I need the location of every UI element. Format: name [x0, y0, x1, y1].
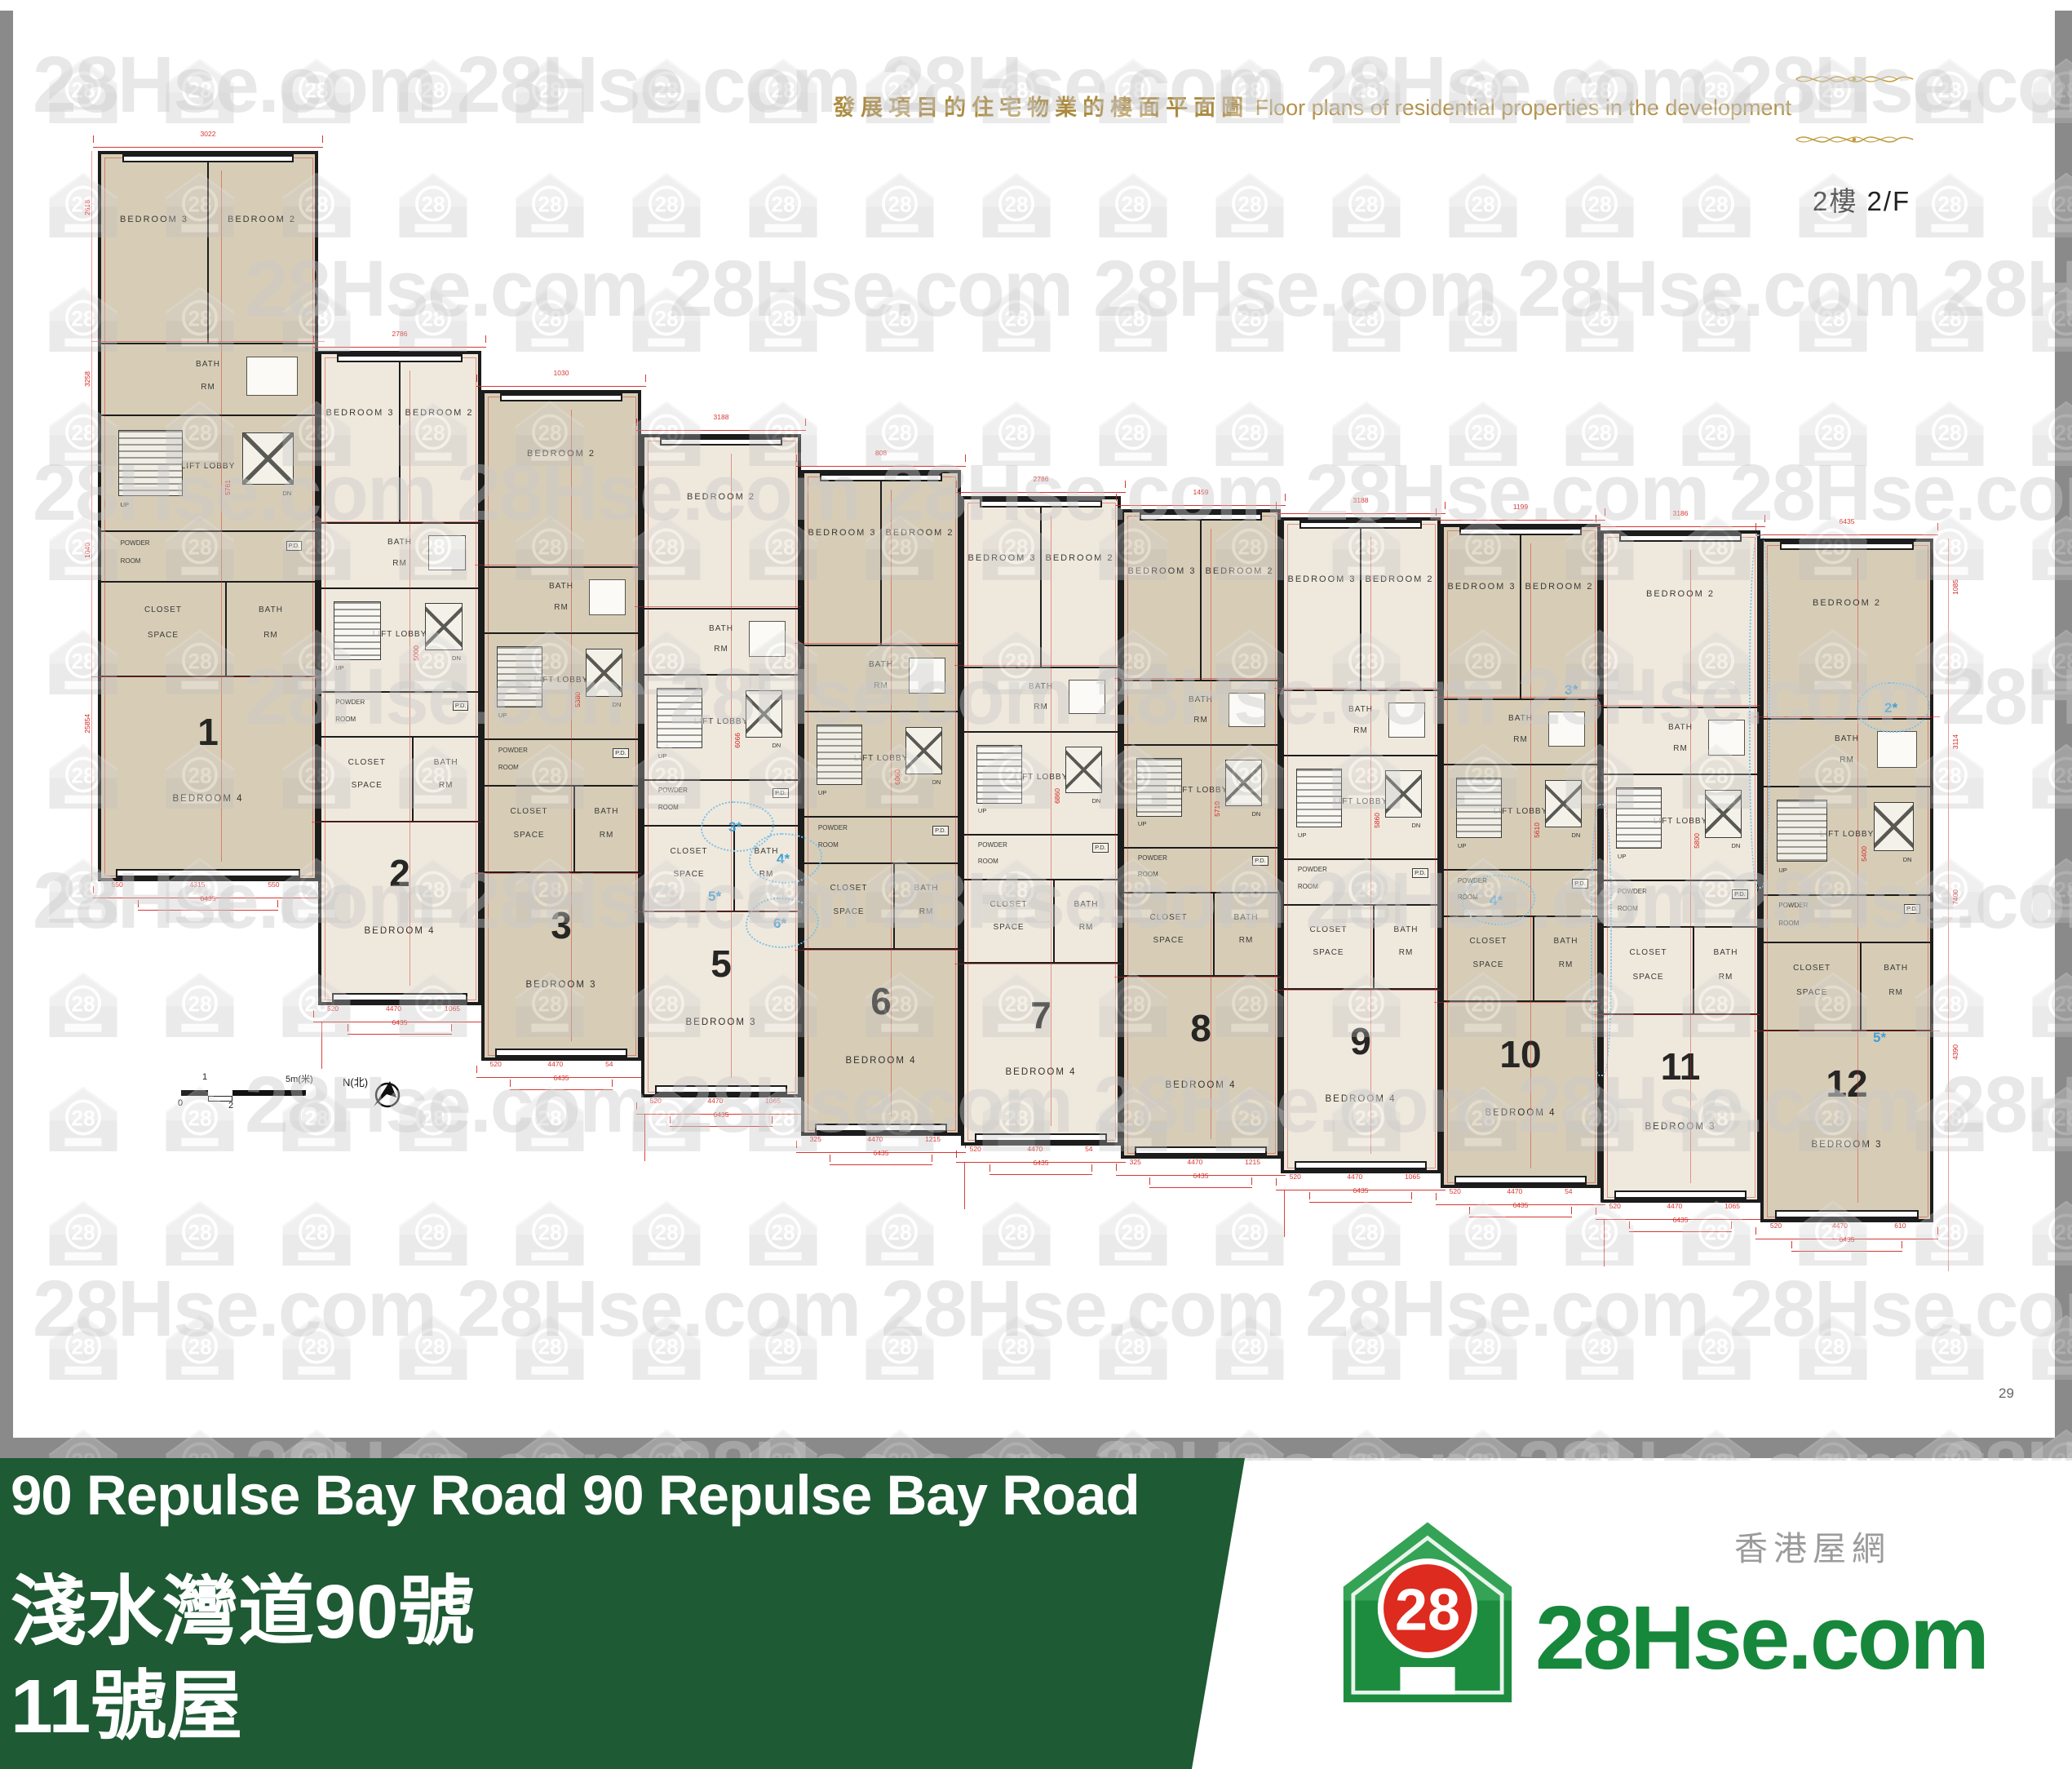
dimension-value: 6435: [1149, 1172, 1251, 1180]
page-title-chinese: 發展項目的住宅物業的樓面平面圖: [833, 95, 1249, 120]
dimension-stub: [1284, 1190, 1285, 1237]
dimension-stub: [1604, 1219, 1605, 1266]
dimension-rail-top: 1030: [476, 378, 646, 387]
dimension-value: 550: [112, 880, 123, 889]
window-band-bottom: [116, 869, 299, 880]
floor-label: 2樓 2/F: [1813, 180, 1910, 219]
dimension-value: 325: [1130, 1158, 1141, 1166]
dimension-rail-bottom2: 6435: [1309, 1195, 1411, 1203]
dimension-rail-top: 3022: [93, 139, 323, 148]
dimension-value: 520: [1770, 1221, 1782, 1230]
north-arrow-icon: [369, 1077, 405, 1111]
scale-label-2: 2: [228, 1101, 233, 1111]
page-title: 發展項目的住宅物業的樓面平面圖 Floor plans of residenti…: [457, 90, 1791, 122]
dimension-value: 6435: [1791, 1235, 1902, 1244]
dimension-rail-top: 3186: [1596, 518, 1765, 527]
dimension-line: [475, 565, 648, 565]
dimension-line-vertical: [1051, 516, 1051, 1126]
window-band-bottom: [495, 1049, 627, 1059]
dimension-inset-outline: [1447, 530, 1596, 1183]
dimension-line: [1274, 990, 1447, 991]
window-band-top: [1619, 532, 1742, 542]
dimension-line: [1754, 1031, 1940, 1031]
ornament-flourish-icon: [1793, 129, 1915, 150]
revision-cloud-strip: [1749, 534, 1770, 889]
dimension-value-vertical: 1085: [1951, 579, 1959, 595]
dimension-line: [1594, 705, 1767, 706]
dimension-rail-bottom2: 6435: [670, 1119, 772, 1127]
dimension-value-vertical: 6860: [1053, 788, 1061, 804]
dimension-value: 3188: [636, 413, 806, 421]
dimension-value: 520: [1450, 1187, 1461, 1195]
dimension-value: 3188: [1276, 496, 1446, 504]
dimension-rail-bottom2: 6435: [510, 1083, 612, 1090]
dimension-inset-outline: [808, 477, 956, 1131]
dimension-value: 4470: [1832, 1221, 1848, 1230]
window-band-bottom: [1454, 1176, 1587, 1186]
dimension-value-vertical: 5380: [573, 692, 582, 707]
window-band-top: [660, 436, 782, 446]
window-band-bottom: [332, 993, 467, 1004]
dimension-value-vertical: 5800: [1693, 833, 1701, 849]
revision-note: 4*: [1490, 893, 1503, 909]
window-band-bottom: [1614, 1190, 1747, 1201]
house-number-label: 11號屋: [11, 1644, 242, 1754]
dimension-inset-outline: [1767, 545, 1928, 1217]
dimension-rail-top: 3188: [636, 422, 806, 431]
dimension-inset-outline: [648, 441, 796, 1093]
dimension-value: 6435: [1469, 1201, 1571, 1209]
revision-note: 2*: [1884, 700, 1897, 716]
dimension-value: 4470: [1347, 1173, 1362, 1181]
dimension-stub: [964, 1162, 965, 1209]
dimension-value-vertical: 5000: [412, 645, 420, 661]
revision-cloud-strip: [1591, 804, 1612, 1076]
dimension-value: 1065: [765, 1097, 781, 1105]
dimension-line: [1274, 688, 1447, 689]
dimension-line-vertical: [221, 171, 222, 862]
dimension-value: 3186: [1596, 509, 1765, 517]
dimension-value: 520: [650, 1097, 662, 1105]
dimension-value: 54: [1085, 1145, 1092, 1153]
dimension-line-vertical: [91, 151, 92, 881]
dimension-rail-bottom2: 6435: [1469, 1210, 1571, 1217]
dimension-value: 4470: [707, 1097, 723, 1105]
dimension-line-vertical: [571, 410, 572, 1041]
dimension-value-vertical: 3114: [1951, 734, 1959, 749]
dimension-value-vertical: 5860: [1373, 813, 1381, 828]
dimension-line: [91, 676, 325, 677]
dimension-value: 6435: [138, 894, 279, 902]
dimension-rail-bottom2: 6435: [1629, 1225, 1731, 1232]
dimension-rail-bottom2: 6435: [1791, 1244, 1902, 1252]
dimension-rail-top: 2786: [313, 339, 486, 348]
ornament-flourish-icon: [1793, 69, 1915, 90]
dimension-value: 610: [1894, 1221, 1906, 1230]
28hse-tagline: 香港屋網: [1734, 1521, 1891, 1570]
revision-note: 5*: [1873, 1030, 1886, 1046]
dimension-value: 6435: [510, 1074, 612, 1082]
dimension-rail-top: 6435: [1755, 526, 1938, 535]
dimension-value: 4470: [1027, 1145, 1043, 1153]
window-band-bottom: [815, 1124, 947, 1134]
dimension-line-vertical: [1370, 537, 1371, 1154]
dimension-rail-bottom2: 6435: [138, 903, 279, 911]
dimension-line: [91, 341, 325, 342]
dimension-stub: [321, 1022, 322, 1069]
dimension-rail-bottom2: 6435: [1149, 1181, 1251, 1188]
revision-note: 4*: [777, 851, 790, 867]
dimension-inset-outline: [967, 503, 1116, 1141]
dimension-value: 54: [1565, 1187, 1572, 1195]
window-band-top: [1459, 525, 1582, 535]
dimension-value: 6435: [1755, 517, 1938, 525]
dimension-value: 1199: [1436, 503, 1605, 511]
dimension-rail-top: 1199: [1436, 512, 1605, 521]
dimension-value: 4470: [867, 1135, 883, 1143]
scale-label-1: 1: [202, 1072, 207, 1082]
dimension-line: [1434, 697, 1607, 698]
north-label: N(北): [343, 1074, 368, 1089]
dimension-line: [954, 964, 1127, 964]
dimension-value: 4470: [1187, 1158, 1202, 1166]
page-title-english: Floor plans of residential properties in…: [1255, 95, 1791, 120]
dimension-line: [795, 643, 967, 644]
dimension-line: [1114, 977, 1287, 978]
dimension-line-vertical: [1857, 558, 1858, 1203]
dimension-rail-bottom2: 6435: [990, 1168, 1091, 1175]
dimension-value-vertical: 4390: [1951, 1044, 1959, 1060]
dimension-value: 2786: [956, 475, 1126, 483]
dimension-inset-outline: [488, 397, 636, 1056]
window-band-top: [337, 352, 463, 362]
dimension-inset-outline: [1287, 524, 1436, 1168]
dimension-value: 2786: [313, 330, 486, 338]
dimension-rail-top: 3188: [1276, 505, 1446, 514]
dimension-value: 1030: [476, 369, 646, 377]
28hse-logo-icon: 28: [1330, 1514, 1525, 1706]
dimension-value: 6435: [990, 1159, 1091, 1167]
dimension-value: 3022: [93, 130, 323, 138]
dimension-value: 6435: [348, 1018, 452, 1026]
scale-bar-segment: [208, 1096, 232, 1102]
window-band-bottom: [975, 1133, 1107, 1144]
dimension-value: 520: [327, 1004, 339, 1013]
revision-note: 3*: [728, 819, 742, 836]
window-band-top: [122, 153, 294, 162]
dimension-value-vertical: 5400: [1860, 846, 1868, 862]
dimension-line-vertical: [731, 454, 732, 1078]
dimension-value: 54: [605, 1060, 613, 1068]
dimension-inset-outline: [1607, 537, 1755, 1198]
dimension-value: 520: [1609, 1202, 1621, 1210]
window-band-bottom: [1295, 1161, 1427, 1172]
revision-note: 3*: [1565, 682, 1578, 698]
dimension-line: [954, 665, 1127, 666]
dimension-line: [1434, 1002, 1607, 1003]
window-band-top: [980, 498, 1102, 508]
window-band-bottom: [1135, 1146, 1267, 1157]
dimension-line-vertical: [1690, 550, 1691, 1183]
window-band-top: [1780, 540, 1913, 550]
dimension-rail-top: 1459: [1116, 497, 1286, 506]
floorplan-page: 發展項目的住宅物業的樓面平面圖 Floor plans of residenti…: [0, 0, 2072, 1769]
dimension-rail-bottom2: 6435: [348, 1027, 452, 1035]
dimension-value-vertical: 3258: [83, 371, 91, 387]
dimension-value: 325: [810, 1135, 821, 1143]
window-band-bottom: [655, 1085, 787, 1096]
dimension-stub: [644, 1114, 645, 1161]
dimension-value-vertical: 1040: [83, 543, 91, 558]
dimension-line: [475, 873, 648, 874]
dimension-line-vertical: [891, 490, 892, 1116]
dimension-inset-outline: [104, 157, 313, 876]
dimension-value: 520: [970, 1145, 981, 1153]
28hse-brand-text: 28Hse.com: [1535, 1586, 1987, 1690]
dimension-line: [795, 950, 967, 951]
dimension-line-vertical: [410, 370, 410, 986]
svg-text:28: 28: [1395, 1577, 1460, 1643]
dimension-value: 1459: [1116, 488, 1286, 496]
window-band-top: [1140, 511, 1262, 521]
revision-note: 5*: [708, 889, 721, 905]
dimension-value-vertical: 5761: [224, 480, 232, 495]
dimension-value-vertical: 5710: [1213, 801, 1221, 817]
dimension-value: 4315: [189, 880, 205, 889]
dimension-value-vertical: 7400: [1951, 889, 1959, 905]
dimension-value: 550: [268, 880, 279, 889]
dimension-line: [1594, 1014, 1767, 1015]
dimension-rail-top: 2786: [956, 484, 1126, 493]
dimension-line-vertical: [1948, 539, 1949, 1271]
dimension-value-vertical: 6060: [893, 769, 901, 785]
scale-label-5m: 5m(米): [286, 1072, 313, 1085]
dimension-line: [312, 822, 488, 822]
dimension-value: 4470: [1507, 1187, 1522, 1195]
dimension-line-vertical: [1211, 529, 1211, 1139]
dimension-line-vertical: [1530, 543, 1531, 1168]
dimension-value: 6435: [830, 1149, 932, 1157]
dimension-line: [312, 521, 488, 522]
dimension-value: 4470: [386, 1004, 401, 1013]
revision-note: 6*: [773, 916, 786, 932]
property-name-chinese: 淺水灣道90號: [11, 1550, 474, 1660]
dimension-inset-outline: [325, 357, 476, 1000]
page-number: 29: [1999, 1385, 2014, 1402]
window-band-top: [820, 472, 942, 481]
dimension-line: [1114, 678, 1287, 679]
dimension-inset-outline: [1127, 516, 1276, 1154]
window-band-top: [1299, 519, 1422, 529]
dimension-value: 520: [490, 1060, 502, 1068]
dimension-rail-bottom2: 6435: [830, 1158, 932, 1165]
dimension-rail-top: 808: [796, 458, 966, 467]
dimension-value: 6435: [670, 1111, 772, 1119]
window-band-top: [500, 392, 622, 401]
dimension-value: 1065: [1724, 1202, 1740, 1210]
dimension-value: 6435: [1629, 1216, 1731, 1224]
dimension-value: 4470: [547, 1060, 563, 1068]
dimension-value-vertical: 6066: [733, 733, 742, 748]
dimension-value: 808: [796, 449, 966, 457]
dimension-value-vertical: 25854: [83, 714, 91, 734]
dimension-value: 1215: [1245, 1158, 1260, 1166]
dimension-value: 1065: [445, 1004, 460, 1013]
dimension-line: [635, 606, 808, 607]
dimension-value: 1215: [925, 1135, 941, 1143]
scale-bar-segment: [181, 1090, 208, 1096]
property-name-english: 90 Repulse Bay Road 90 Repulse Bay Road: [11, 1463, 1140, 1527]
dimension-value: 1065: [1405, 1173, 1420, 1181]
dimension-value: 6435: [1309, 1186, 1411, 1195]
dimension-value-vertical: 5610: [1533, 822, 1541, 838]
dimension-value: 520: [1290, 1173, 1301, 1181]
dimension-value-vertical: 2618: [83, 200, 91, 215]
dimension-value: 4470: [1667, 1202, 1682, 1210]
scale-bar-segment: [232, 1090, 306, 1096]
scale-label-0: 0: [178, 1098, 183, 1108]
window-band-bottom: [1775, 1210, 1918, 1221]
floor-plan-drawing: BEDROOM 3BEDROOM 2BATHRMLIFT LOBBYUPDNPO…: [0, 0, 2072, 1461]
